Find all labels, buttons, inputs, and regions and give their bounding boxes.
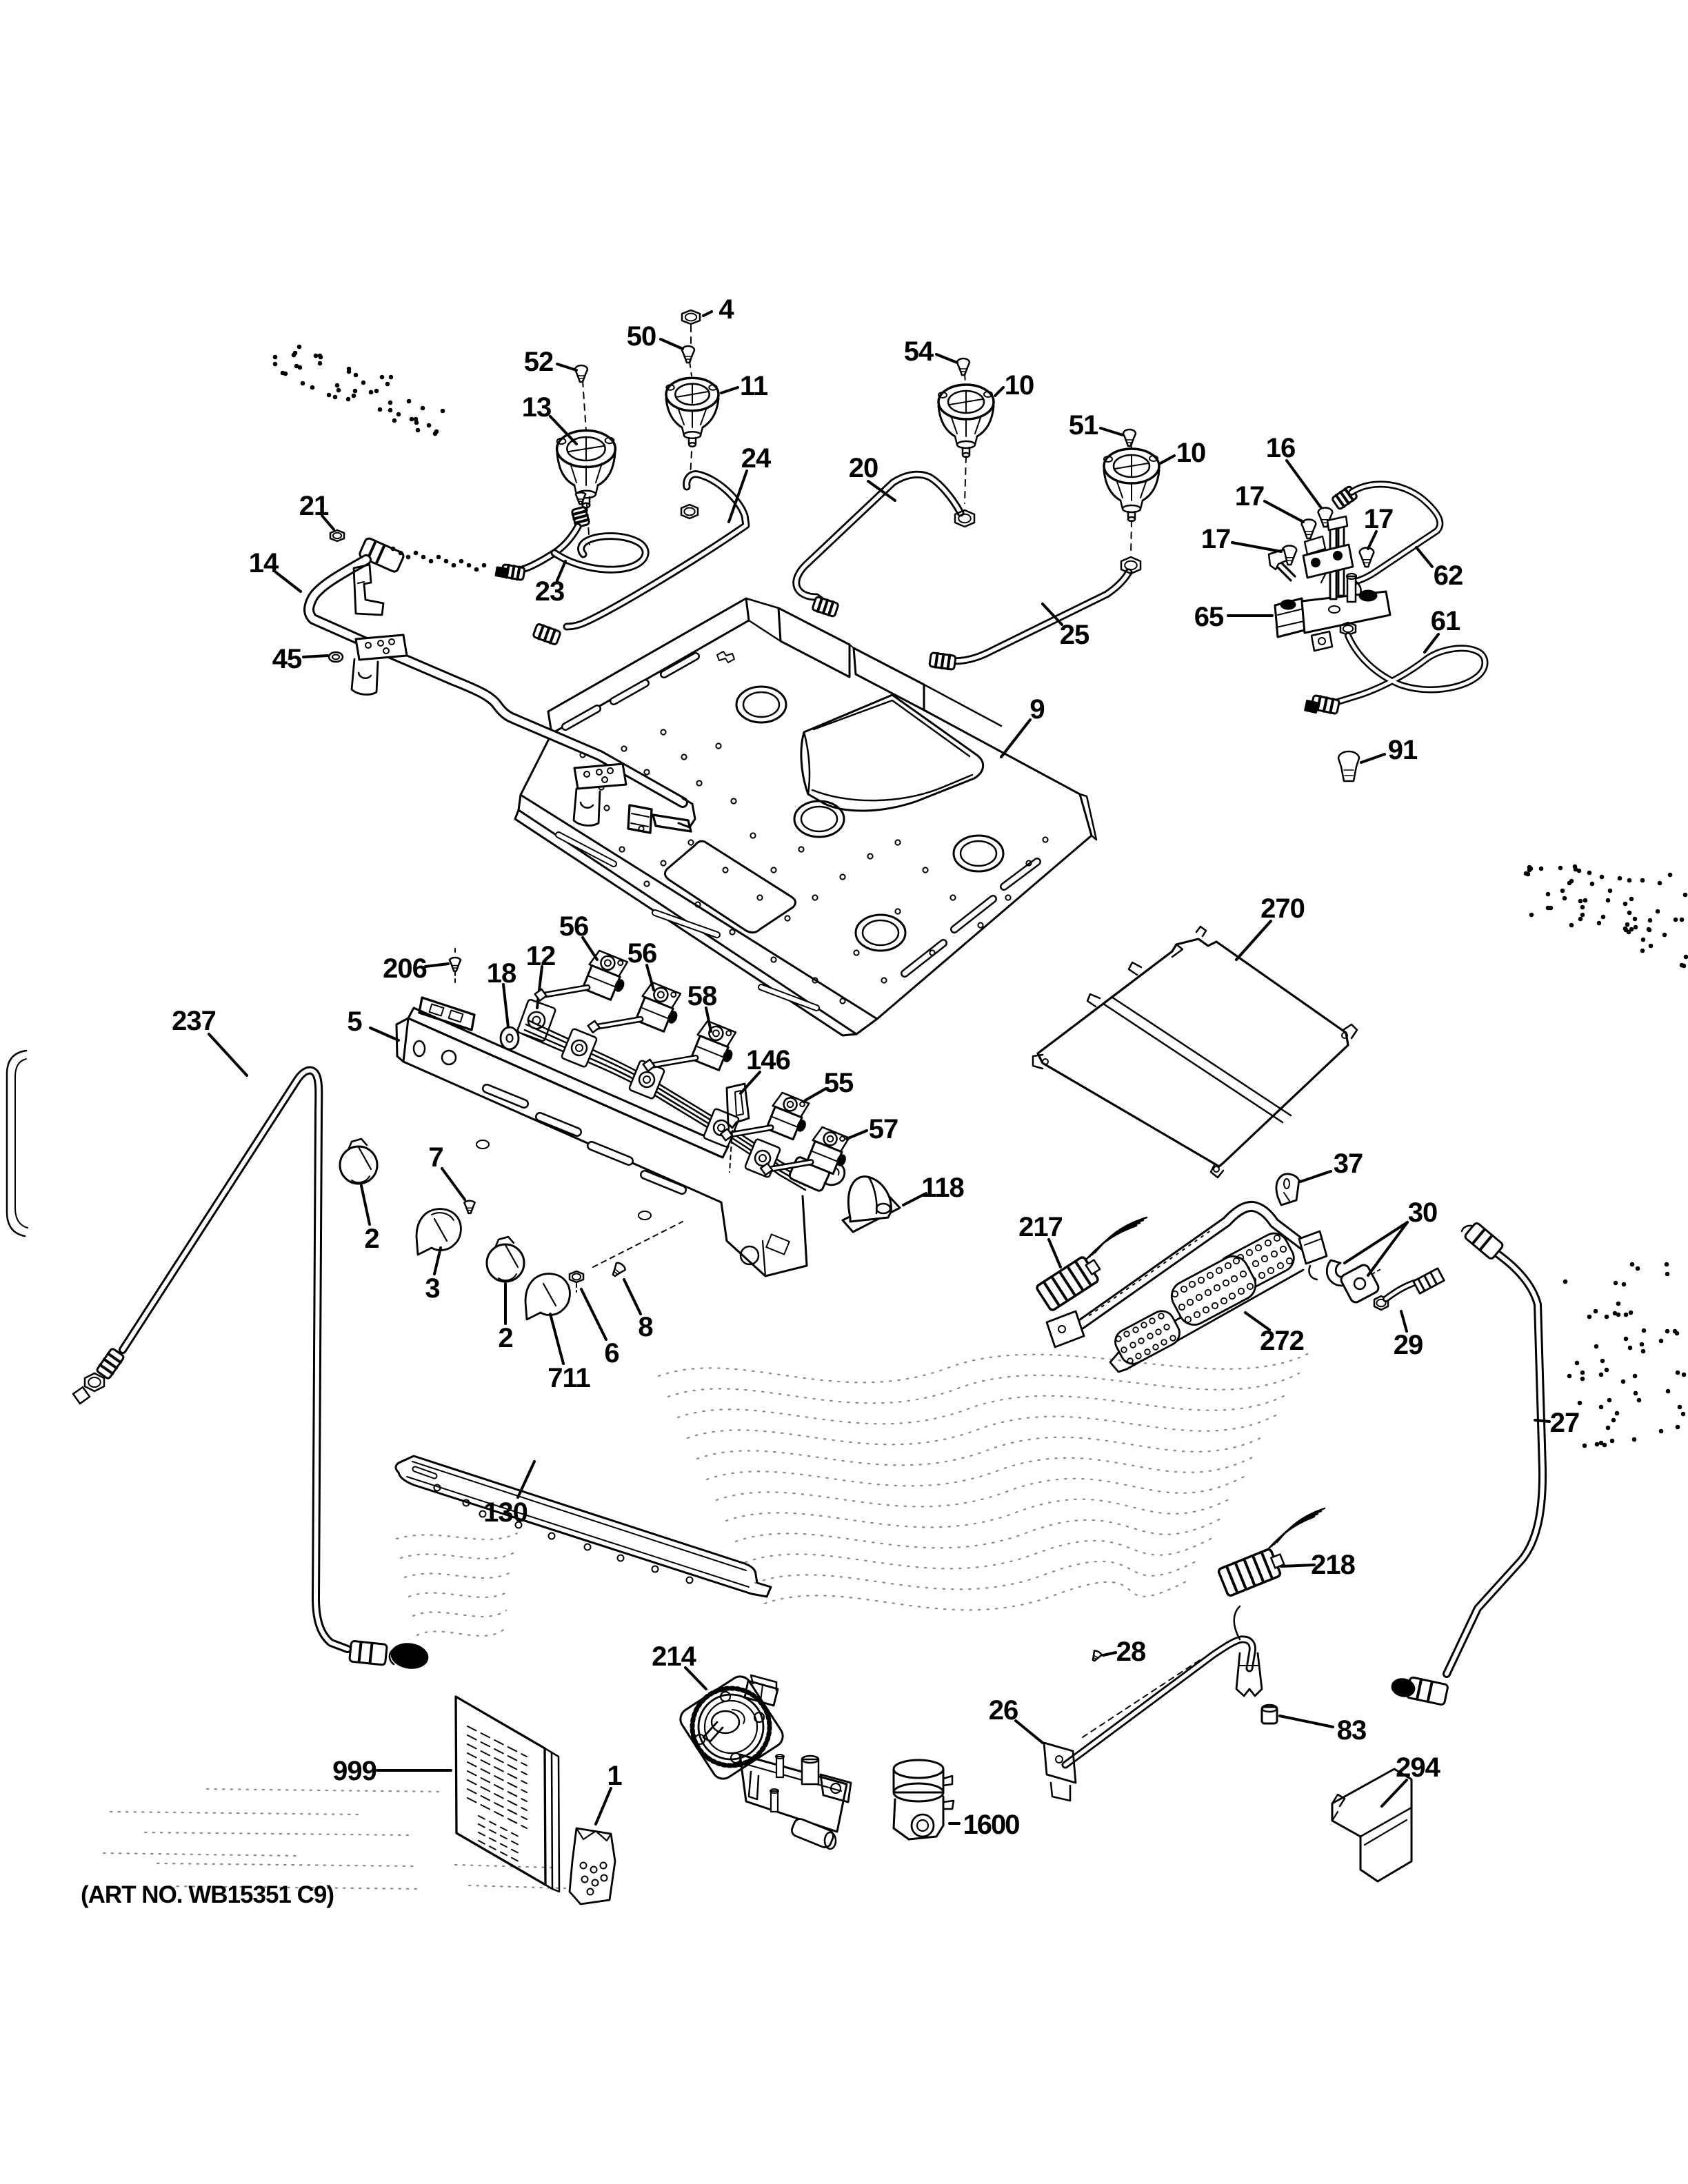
svg-text:1600: 1600	[963, 1810, 1020, 1840]
svg-text:17: 17	[1364, 504, 1394, 534]
svg-text:20: 20	[849, 453, 878, 483]
svg-text:272: 272	[1260, 1326, 1304, 1356]
svg-text:27: 27	[1550, 1408, 1580, 1438]
svg-text:270: 270	[1260, 893, 1305, 924]
svg-text:1: 1	[607, 1761, 622, 1791]
svg-text:237: 237	[172, 1006, 216, 1036]
svg-text:52: 52	[524, 347, 554, 377]
svg-text:23: 23	[535, 576, 565, 607]
svg-text:294: 294	[1396, 1752, 1440, 1783]
svg-text:30: 30	[1408, 1197, 1438, 1228]
svg-text:62: 62	[1434, 560, 1463, 591]
svg-text:50: 50	[627, 321, 656, 352]
svg-text:8: 8	[638, 1312, 653, 1342]
svg-text:25: 25	[1060, 620, 1089, 650]
svg-text:2: 2	[498, 1323, 512, 1353]
svg-text:57: 57	[869, 1114, 898, 1144]
svg-text:146: 146	[746, 1045, 790, 1075]
svg-text:51: 51	[1069, 410, 1098, 441]
svg-text:130: 130	[483, 1497, 527, 1528]
svg-text:16: 16	[1266, 433, 1296, 463]
svg-text:24: 24	[741, 443, 772, 474]
svg-text:11: 11	[740, 371, 768, 401]
svg-text:218: 218	[1311, 1550, 1355, 1580]
svg-text:217: 217	[1018, 1212, 1063, 1242]
svg-text:118: 118	[921, 1173, 964, 1203]
svg-text:56: 56	[627, 938, 657, 969]
svg-text:206: 206	[383, 953, 427, 984]
svg-text:5: 5	[347, 1007, 362, 1037]
svg-text:10: 10	[1176, 438, 1206, 468]
svg-text:17: 17	[1201, 524, 1231, 554]
svg-text:28: 28	[1116, 1637, 1146, 1667]
svg-text:10: 10	[1005, 370, 1034, 401]
svg-text:18: 18	[487, 958, 516, 989]
svg-text:4: 4	[719, 294, 734, 325]
svg-text:13: 13	[522, 392, 552, 423]
svg-text:54: 54	[904, 336, 934, 367]
svg-text:45: 45	[272, 644, 302, 674]
svg-text:(ART NO. WB15351 C9): (ART NO. WB15351 C9)	[81, 1881, 334, 1908]
svg-text:14: 14	[249, 548, 279, 578]
svg-text:2: 2	[364, 1224, 379, 1254]
svg-text:17: 17	[1235, 481, 1265, 512]
svg-text:6: 6	[604, 1338, 619, 1368]
svg-text:21: 21	[299, 491, 329, 521]
svg-text:12: 12	[526, 941, 556, 971]
svg-text:711: 711	[547, 1363, 590, 1393]
svg-text:3: 3	[425, 1273, 439, 1304]
svg-text:7: 7	[428, 1142, 443, 1173]
svg-text:29: 29	[1394, 1330, 1423, 1360]
svg-text:37: 37	[1334, 1149, 1363, 1179]
svg-text:56: 56	[559, 911, 589, 942]
svg-text:91: 91	[1388, 735, 1418, 765]
svg-text:26: 26	[989, 1695, 1018, 1726]
svg-text:9: 9	[1029, 694, 1044, 725]
svg-text:55: 55	[824, 1068, 854, 1098]
svg-text:61: 61	[1431, 606, 1460, 636]
svg-text:999: 999	[332, 1756, 376, 1786]
svg-text:214: 214	[652, 1641, 696, 1672]
svg-text:65: 65	[1194, 602, 1224, 632]
svg-text:83: 83	[1337, 1715, 1367, 1746]
svg-text:58: 58	[687, 981, 717, 1011]
